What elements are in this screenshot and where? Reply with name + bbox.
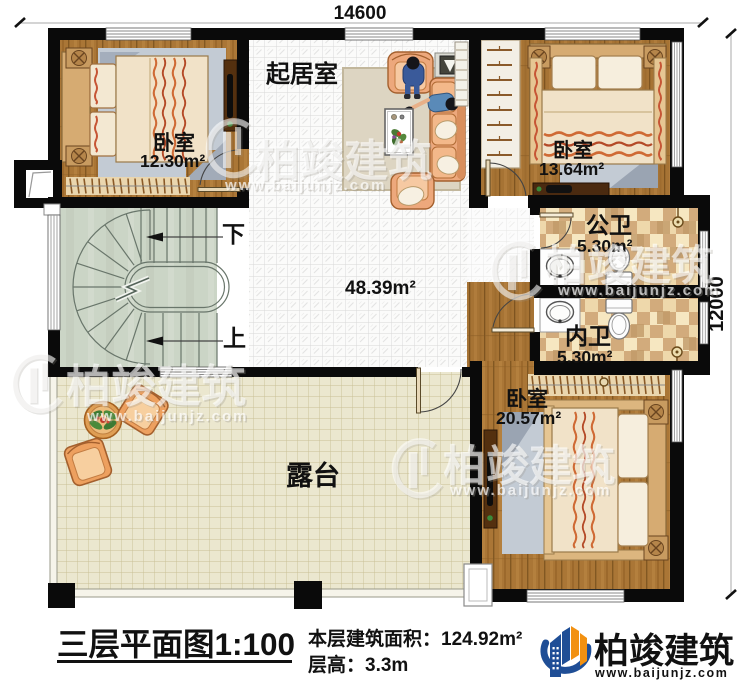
svg-text:下: 下 [222, 221, 245, 247]
svg-text:公卫: 公卫 [586, 212, 632, 238]
svg-text:本层建筑面积：124.92m²: 本层建筑面积：124.92m² [308, 627, 522, 650]
svg-text:www.baijunjz.com: www.baijunjz.com [224, 177, 386, 194]
svg-text:www.baijunjz.com: www.baijunjz.com [449, 482, 611, 499]
svg-text:柏竣建筑: 柏竣建筑 [66, 361, 246, 412]
svg-text:起居室: 起居室 [265, 60, 338, 88]
svg-text:13.64m²: 13.64m² [539, 159, 604, 179]
svg-text:20.57m²: 20.57m² [496, 408, 561, 428]
svg-text:5.30m²: 5.30m² [557, 347, 613, 367]
svg-text:www.baijunjz.com: www.baijunjz.com [594, 666, 728, 680]
svg-text:48.39m²: 48.39m² [345, 278, 416, 299]
svg-text:www.baijunjz.com: www.baijunjz.com [86, 408, 248, 425]
svg-text:三层平面图1:100: 三层平面图1:100 [57, 626, 295, 662]
svg-text:上: 上 [223, 325, 246, 351]
svg-text:12.30m²: 12.30m² [140, 151, 205, 171]
svg-text:内卫: 内卫 [565, 323, 611, 349]
svg-text:柏竣建筑: 柏竣建筑 [594, 631, 734, 671]
svg-text:14600: 14600 [334, 3, 387, 24]
svg-text:露台: 露台 [286, 460, 340, 491]
svg-text:www.baijunjz.com: www.baijunjz.com [557, 282, 719, 299]
svg-text:层高：3.3m: 层高：3.3m [308, 653, 408, 676]
